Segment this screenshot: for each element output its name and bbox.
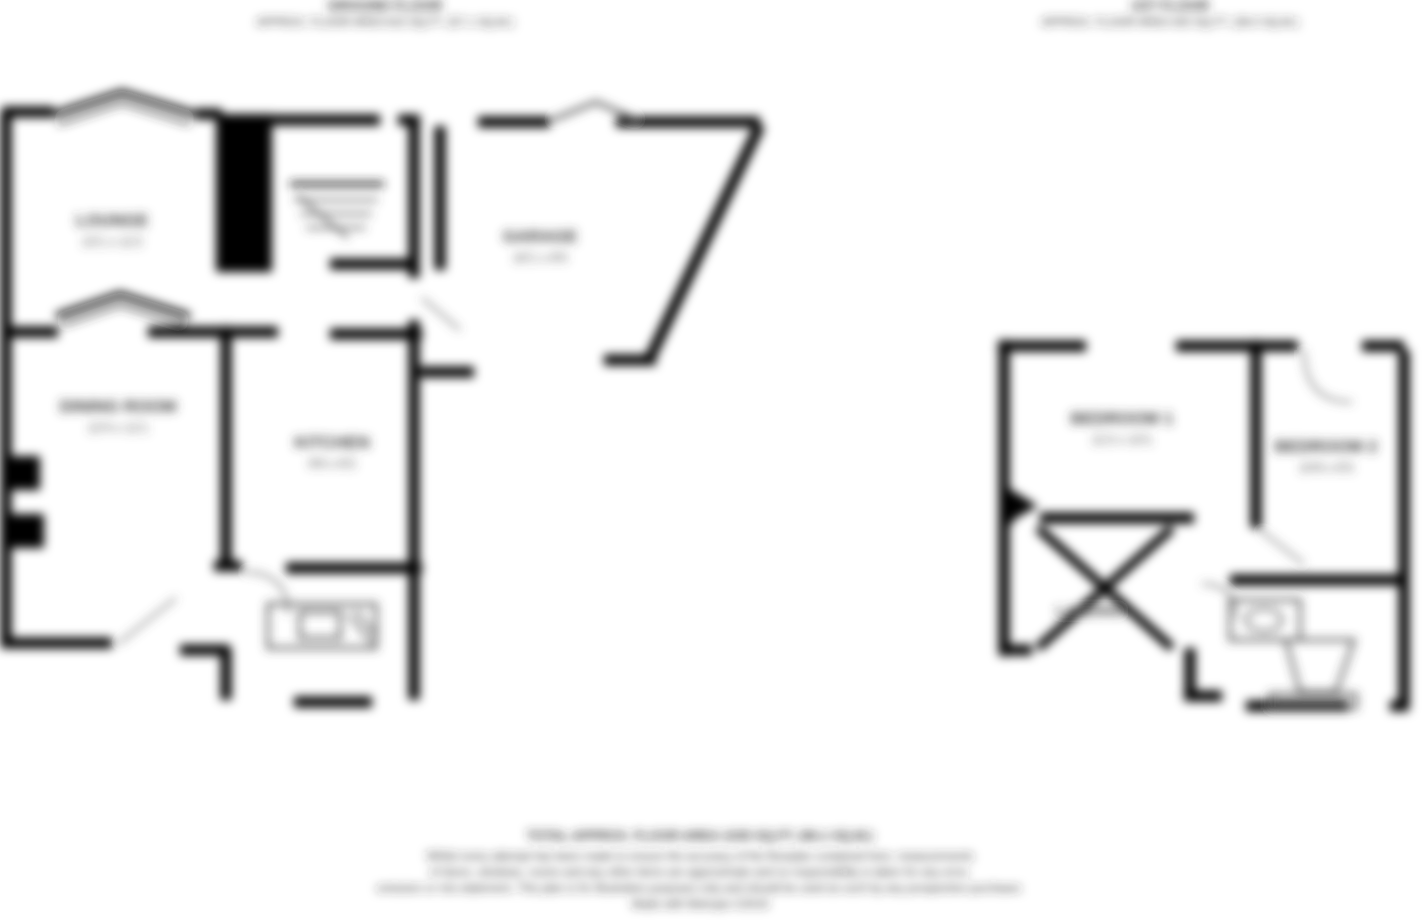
stairs-icon [290, 184, 384, 238]
floorplan-svg: GROUND FLOOR APPROX. FLOOR AREA 615 SQ.F… [0, 0, 1424, 922]
first-floor-plan: 1ST FLOOR APPROX. FLOOR AREA 420 SQ.FT. … [998, 0, 1408, 710]
footer-disclaimer-line1: Whilst every attempt has been made to en… [426, 851, 973, 863]
wall-pier-block [2, 514, 44, 548]
wall-pier-block [6, 456, 40, 490]
room-label-kitchen: KITCHEN [294, 433, 370, 452]
ground-floor-title: GROUND FLOOR [327, 0, 442, 13]
toilet-icon [1270, 640, 1356, 708]
bay-window-icon [54, 92, 196, 124]
room-dims-bedroom1: 11'2 x 10'1 [1091, 432, 1152, 447]
room-dims-bedroom2: 10'8 x 8'3 [1299, 460, 1354, 475]
stair-cross-icon [1038, 528, 1172, 648]
basin-icon [1230, 600, 1300, 640]
footer-disclaimer: TOTAL APPROX. FLOOR AREA 1035 SQ.FT. (96… [377, 828, 1024, 911]
footer-total-area: TOTAL APPROX. FLOOR AREA 1035 SQ.FT. (96… [527, 828, 874, 843]
room-dims-dining-room: 12'4 x 11'1 [87, 420, 148, 435]
room-dims-kitchen: 9'8 x 8'2 [308, 456, 356, 471]
footer-disclaimer-line2: of doors, windows, rooms and any other i… [430, 867, 970, 879]
floorplan-image: GROUND FLOOR APPROX. FLOOR AREA 615 SQ.F… [0, 0, 1424, 922]
room-dims-garage: 16'1 x 8'0 [513, 250, 568, 265]
first-floor-title: 1ST FLOOR [1131, 0, 1210, 13]
room-label-bedroom1: BEDROOM 1 [1071, 409, 1174, 428]
floorplan-content: GROUND FLOOR APPROX. FLOOR AREA 615 SQ.F… [2, 0, 1408, 911]
bay-window-icon [56, 294, 190, 325]
footer-credit: Made with Metropix ©2019 [632, 899, 769, 911]
ground-floor-plan: GROUND FLOOR APPROX. FLOOR AREA 615 SQ.F… [2, 0, 760, 702]
room-dims-lounge: 13'1 x 11'2 [81, 234, 142, 249]
chimney-block [216, 114, 272, 272]
room-label-bedroom2: BEDROOM 2 [1275, 437, 1378, 456]
first-floor-area: APPROX. FLOOR AREA 420 SQ.FT. (39.0 SQ.M… [1041, 17, 1299, 29]
ground-floor-area: APPROX. FLOOR AREA 615 SQ.FT. (57.1 SQ.M… [256, 17, 514, 29]
sink-icon [268, 604, 376, 648]
wall-segments-first [998, 340, 1408, 710]
room-label-landing: LANDING [1056, 603, 1124, 620]
room-label-dining-room: DINING ROOM [59, 397, 176, 416]
footer-disclaimer-line3: omission or mis-statement. This plan is … [377, 883, 1024, 895]
room-label-lounge: LOUNGE [76, 211, 149, 230]
door-leaf-icon [1002, 484, 1038, 526]
room-label-garage: GARAGE [503, 227, 578, 246]
